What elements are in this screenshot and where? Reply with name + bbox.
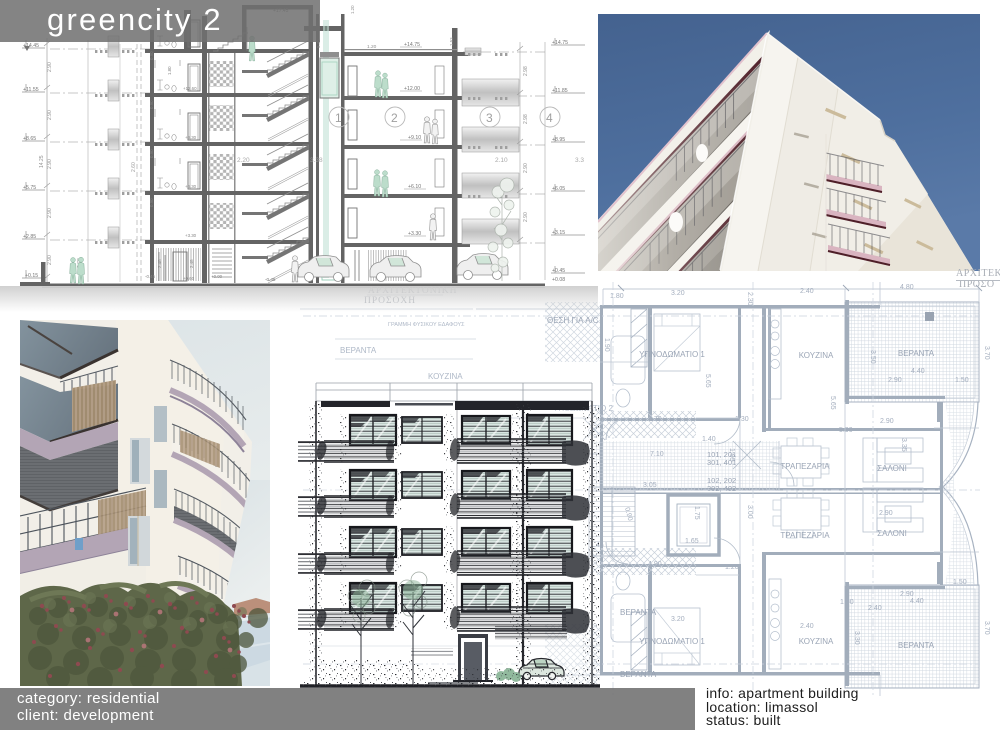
svg-text:1.20: 1.20 bbox=[725, 564, 739, 571]
svg-text:2.98: 2.98 bbox=[523, 114, 529, 124]
svg-text:2.10: 2.10 bbox=[495, 157, 508, 164]
svg-text:ΚΟΥΖΙΝΑ: ΚΟΥΖΙΝΑ bbox=[799, 637, 834, 646]
svg-text:2.90: 2.90 bbox=[523, 163, 529, 173]
svg-text:3.20: 3.20 bbox=[671, 616, 685, 623]
svg-text:2.90: 2.90 bbox=[879, 510, 893, 517]
svg-text:-0.45: -0.45 bbox=[265, 277, 276, 282]
svg-text:2.60: 2.60 bbox=[131, 162, 137, 172]
svg-text:302, 402: 302, 402 bbox=[707, 484, 736, 493]
svg-text:1.50: 1.50 bbox=[953, 579, 967, 586]
svg-text:5.90: 5.90 bbox=[839, 427, 853, 434]
svg-text:0.90: 0.90 bbox=[149, 100, 154, 109]
svg-text:2.40: 2.40 bbox=[800, 623, 814, 630]
svg-text:1.30: 1.30 bbox=[735, 416, 749, 423]
svg-text:0.90: 0.90 bbox=[149, 198, 154, 207]
svg-text:2.90: 2.90 bbox=[880, 418, 894, 425]
svg-text:3.3: 3.3 bbox=[575, 157, 584, 164]
svg-text:-0.45: -0.45 bbox=[145, 274, 156, 279]
svg-text:3.50: 3.50 bbox=[869, 350, 876, 364]
svg-text:5.65: 5.65 bbox=[704, 374, 711, 388]
svg-text:2.90: 2.90 bbox=[47, 159, 53, 169]
svg-text:4.40: 4.40 bbox=[911, 368, 925, 375]
svg-text:2.90: 2.90 bbox=[888, 377, 902, 384]
svg-text:ΓΡΑΜΜΗ ΦΥΣΙΚΟΥ ΕΔΑΦΟΥΣ: ΓΡΑΜΜΗ ΦΥΣΙΚΟΥ ΕΔΑΦΟΥΣ bbox=[388, 322, 465, 328]
svg-text:+0.00: +0.00 bbox=[211, 274, 223, 279]
svg-text:ΤΡΑΠΕΖΑΡΙΑ: ΤΡΑΠΕΖΑΡΙΑ bbox=[780, 531, 830, 540]
svg-text:2.48: 2.48 bbox=[157, 259, 162, 268]
svg-text:4.70: 4.70 bbox=[648, 416, 662, 423]
svg-text:3.05: 3.05 bbox=[643, 482, 657, 489]
svg-text:1.65: 1.65 bbox=[685, 538, 699, 545]
svg-text:4.40: 4.40 bbox=[910, 598, 924, 605]
svg-text:1.53: 1.53 bbox=[449, 37, 454, 46]
svg-text:ΘΕΣΗ ΓΙΑ A/C: ΘΕΣΗ ΓΙΑ A/C bbox=[547, 316, 599, 325]
svg-text:2.98: 2.98 bbox=[523, 66, 529, 76]
svg-text:3: 3 bbox=[486, 111, 493, 125]
svg-text:ΣΑΛΟΝΙ: ΣΑΛΟΝΙ bbox=[877, 529, 907, 538]
svg-text:+9.30: +9.30 bbox=[185, 135, 197, 140]
svg-text:1.95: 1.95 bbox=[728, 448, 735, 462]
svg-text:0.90: 0.90 bbox=[149, 51, 154, 60]
svg-text:+0.60: +0.60 bbox=[183, 276, 195, 281]
svg-text:1.40: 1.40 bbox=[702, 436, 716, 443]
svg-text:14.25: 14.25 bbox=[39, 155, 45, 168]
svg-text:2.40: 2.40 bbox=[868, 605, 882, 612]
svg-text:ΤΡΑΠΕΖΑΡΙΑ: ΤΡΑΠΕΖΑΡΙΑ bbox=[780, 462, 830, 471]
svg-text:2.90: 2.90 bbox=[47, 62, 53, 72]
svg-text:2.20: 2.20 bbox=[237, 157, 250, 164]
svg-text:3.70: 3.70 bbox=[983, 621, 990, 635]
svg-text:+0.08: +0.08 bbox=[552, 277, 565, 283]
svg-text:1.50: 1.50 bbox=[955, 377, 969, 384]
svg-text:1.80: 1.80 bbox=[167, 66, 172, 75]
svg-text:5.65: 5.65 bbox=[829, 396, 836, 410]
svg-text:1.75: 1.75 bbox=[693, 506, 700, 520]
svg-text:3.00: 3.00 bbox=[746, 505, 753, 519]
svg-text:1.20: 1.20 bbox=[367, 44, 377, 50]
svg-text:0.90: 0.90 bbox=[149, 149, 154, 158]
svg-text:2.90: 2.90 bbox=[47, 110, 53, 120]
svg-text:2.40: 2.40 bbox=[800, 288, 814, 295]
svg-text:ΥΠΝΟΔΩΜΑΤΙΟ 1: ΥΠΝΟΔΩΜΑΤΙΟ 1 bbox=[639, 350, 705, 359]
svg-text:ΒΕΡΑΝΤΑ: ΒΕΡΑΝΤΑ bbox=[898, 641, 935, 650]
svg-text:4: 4 bbox=[546, 111, 553, 125]
svg-text:2: 2 bbox=[391, 111, 398, 125]
svg-text:2.90: 2.90 bbox=[47, 208, 53, 218]
svg-text:2.90: 2.90 bbox=[523, 212, 529, 222]
svg-text:4.80: 4.80 bbox=[900, 284, 914, 291]
svg-text:ΣΑΛΟΝΙ: ΣΑΛΟΝΙ bbox=[877, 464, 907, 473]
svg-text:1: 1 bbox=[335, 111, 342, 125]
svg-text:+3.30: +3.30 bbox=[185, 233, 197, 238]
svg-text:+6.30: +6.30 bbox=[185, 184, 197, 189]
svg-text:3.35: 3.35 bbox=[900, 438, 907, 452]
svg-text:+12.60: +12.60 bbox=[183, 86, 197, 91]
svg-text:3.38: 3.38 bbox=[310, 157, 323, 164]
svg-text:3.70: 3.70 bbox=[983, 346, 990, 360]
svg-text:1.90: 1.90 bbox=[840, 599, 854, 606]
svg-text:ΚΟΥΖΙΝΑ: ΚΟΥΖΙΝΑ bbox=[799, 351, 834, 360]
svg-text:2.90: 2.90 bbox=[47, 255, 53, 265]
svg-text:1.20: 1.20 bbox=[350, 5, 355, 14]
svg-text:4.90: 4.90 bbox=[648, 561, 662, 568]
svg-text:2.48: 2.48 bbox=[189, 259, 194, 268]
svg-text:1.80: 1.80 bbox=[610, 293, 624, 300]
svg-text:ΒΕΡΑΝΤΑ: ΒΕΡΑΝΤΑ bbox=[898, 349, 935, 358]
svg-text:3.20: 3.20 bbox=[671, 290, 685, 297]
svg-text:ΥΠΝΟΔΩΜΑΤΙΟ 1: ΥΠΝΟΔΩΜΑΤΙΟ 1 bbox=[639, 637, 705, 646]
svg-text:3.30: 3.30 bbox=[853, 631, 860, 645]
svg-text:2.30: 2.30 bbox=[746, 292, 753, 306]
svg-text:7.10: 7.10 bbox=[650, 451, 664, 458]
svg-text:2.90: 2.90 bbox=[900, 591, 914, 598]
